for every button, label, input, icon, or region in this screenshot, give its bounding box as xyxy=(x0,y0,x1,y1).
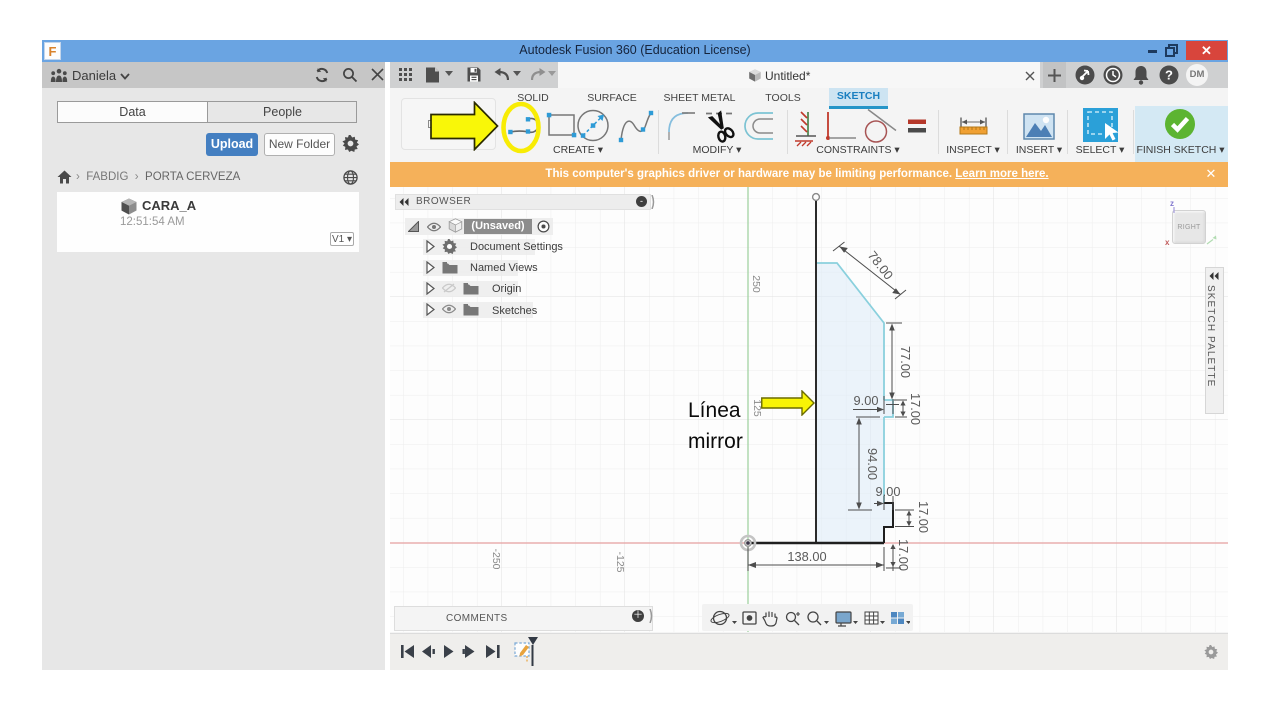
svg-text:-125: -125 xyxy=(614,551,626,572)
svg-text:9.00: 9.00 xyxy=(854,393,879,408)
svg-text:250: 250 xyxy=(750,275,762,293)
svg-text:17.00: 17.00 xyxy=(908,393,923,425)
svg-text:77.00: 77.00 xyxy=(898,346,913,378)
svg-text:-250: -250 xyxy=(490,548,502,569)
svg-text:17.00: 17.00 xyxy=(916,501,931,533)
svg-text:9.00: 9.00 xyxy=(876,484,901,499)
svg-text:?: ? xyxy=(1165,68,1173,83)
svg-text:138.00: 138.00 xyxy=(787,549,826,564)
svg-text:17.00: 17.00 xyxy=(896,539,911,571)
svg-text:94.00: 94.00 xyxy=(865,448,880,480)
